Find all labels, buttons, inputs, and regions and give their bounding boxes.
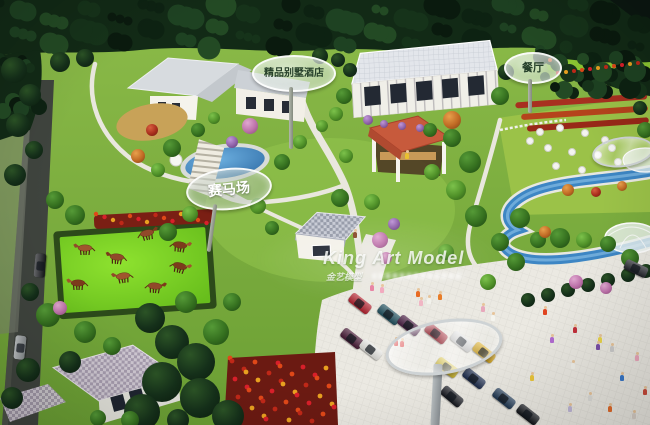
photo-vignette (0, 0, 650, 425)
scale-model-photo: 精品别墅酒店 餐厅 赛马场 King Art Model 金艺模型 (0, 0, 650, 425)
